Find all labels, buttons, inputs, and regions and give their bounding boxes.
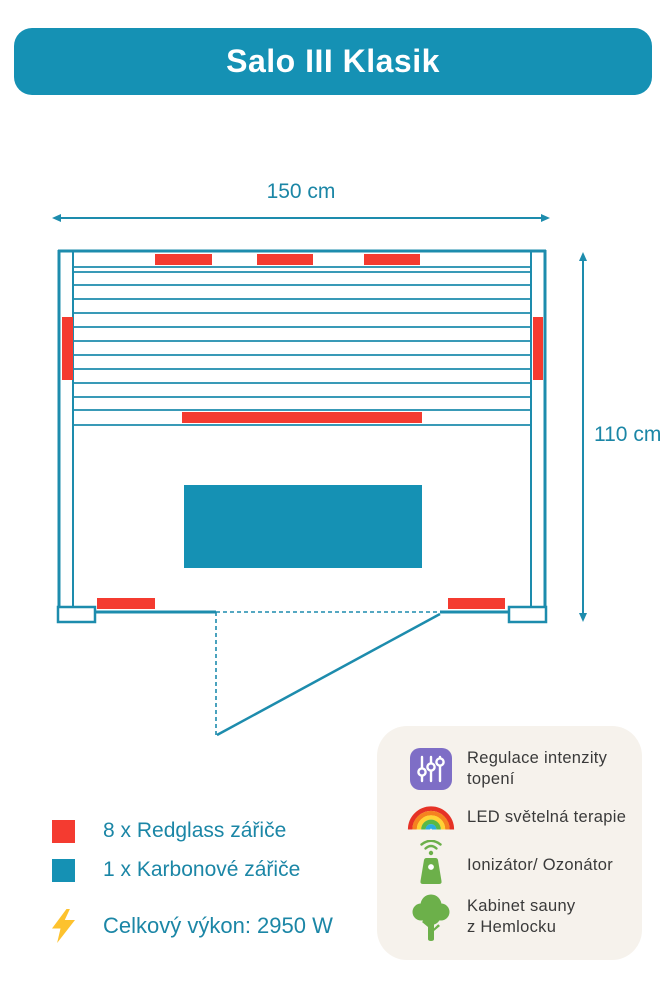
sauna-floor-plan xyxy=(0,175,666,745)
legend-label: 1 x Karbonové zářiče xyxy=(103,858,300,882)
page: Salo III Klasik 150 cm 110 cm xyxy=(0,0,666,1000)
feature-label: Kabinet sauny z Hemlocku xyxy=(467,896,575,937)
redglass-heater xyxy=(448,598,505,609)
header-banner: Salo III Klasik xyxy=(14,28,652,95)
feature-heat-regulation: Regulace intenzity topení xyxy=(407,744,630,794)
redglass-swatch xyxy=(52,820,75,843)
bench-slats xyxy=(73,267,531,425)
redglass-heater xyxy=(364,254,420,265)
width-dimension-arrow xyxy=(52,214,550,222)
legend-item-karbon: 1 x Karbonové zářiče xyxy=(52,858,333,882)
feature-hemlock-cabin: Kabinet sauny z Hemlocku xyxy=(407,890,630,944)
feature-label: Regulace intenzity topení xyxy=(467,748,607,789)
feature-ionizer: Ionizátor/ Ozonátor xyxy=(407,840,630,890)
door xyxy=(216,612,440,736)
redglass-heater xyxy=(62,317,73,380)
carbon-heater xyxy=(184,485,422,568)
sliders-icon xyxy=(407,748,455,790)
legend: 8 x Redglass zářiče 1 x Karbonové zářiče… xyxy=(52,819,333,946)
redglass-heater xyxy=(155,254,212,265)
legend-item-redglass: 8 x Redglass zářiče xyxy=(52,819,333,843)
feature-led-therapy: LED světelná terapie xyxy=(407,794,630,840)
karbon-swatch xyxy=(52,859,75,882)
redglass-heater xyxy=(97,598,155,609)
rainbow-icon xyxy=(407,804,455,831)
legend-label: 8 x Redglass zářiče xyxy=(103,819,286,843)
power-label: Celkový výkon: 2950 W xyxy=(103,913,333,939)
redglass-heater xyxy=(533,317,543,380)
redglass-heater xyxy=(257,254,313,265)
lightning-icon xyxy=(52,906,75,946)
ionizer-icon xyxy=(407,840,455,890)
page-title: Salo III Klasik xyxy=(226,43,440,80)
tree-icon xyxy=(407,891,455,943)
feature-label: LED světelná terapie xyxy=(467,807,626,828)
features-panel: Regulace intenzity topení LED světelná t xyxy=(377,726,642,960)
redglass-heater xyxy=(182,412,422,423)
legend-item-power: Celkový výkon: 2950 W xyxy=(52,906,333,946)
feature-label: Ionizátor/ Ozonátor xyxy=(467,855,613,876)
height-dimension-arrow xyxy=(579,252,587,622)
